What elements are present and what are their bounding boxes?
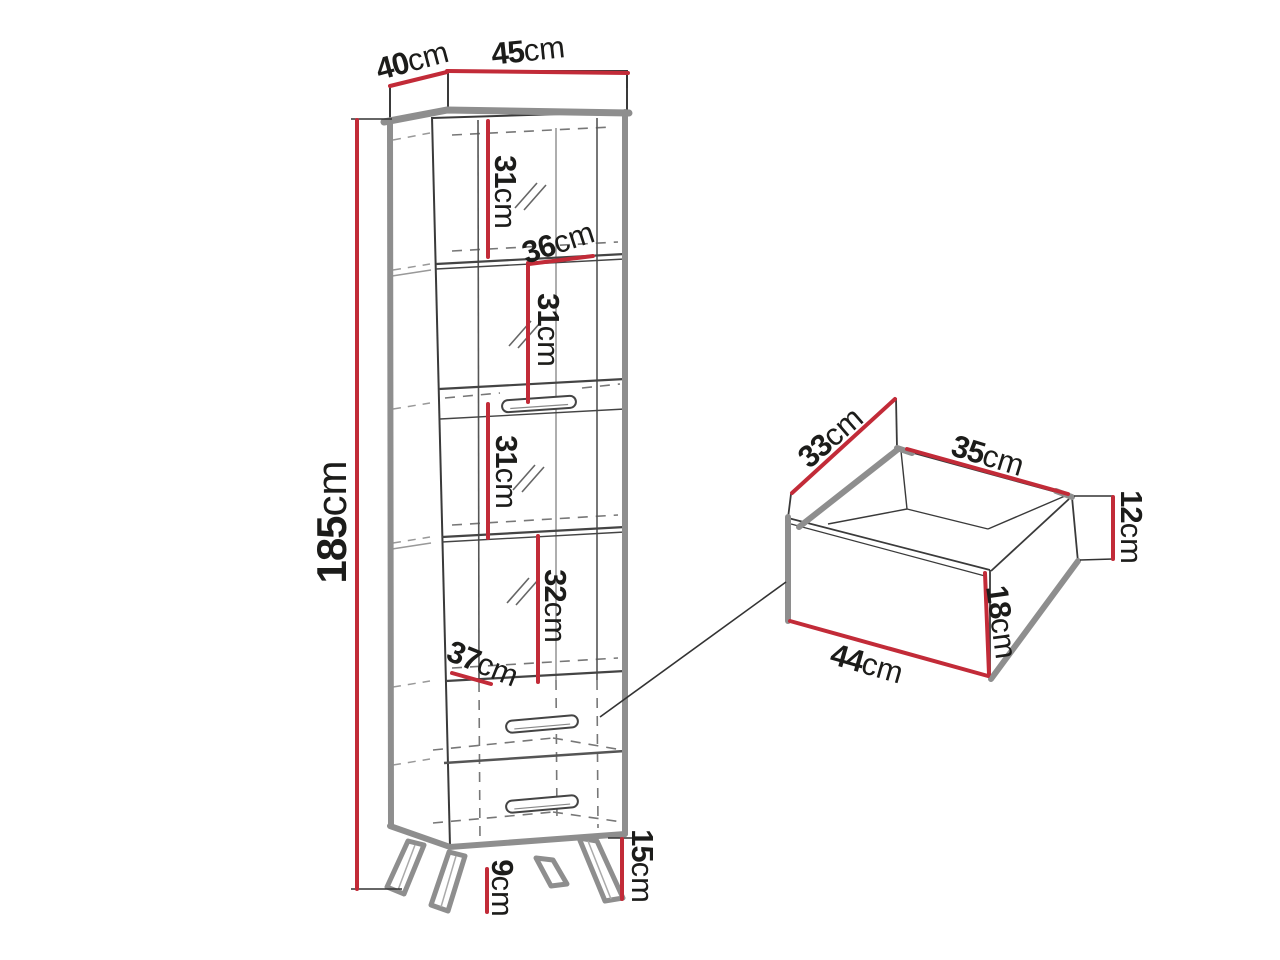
dim-label-45cm: 45cm [489, 29, 566, 72]
dim-label-32cm: 32cm [539, 569, 574, 643]
dim-label-15cm: 15cm [626, 829, 661, 903]
dim-line-45 [447, 71, 628, 73]
cabinet-leg [387, 841, 424, 894]
interior-left-wall [478, 120, 479, 682]
dim-label-31cm-top: 31cm [489, 155, 524, 229]
cabinet-top-front-face [448, 71, 627, 111]
cabinet-leg-back [536, 858, 567, 886]
dim-label-31cm-mid: 31cm [532, 293, 567, 367]
extension-line [1080, 559, 1113, 560]
furniture-dimension-diagram: 40cm 45cm 185cm 31cm 36cm 31cm 31cm 32cm… [0, 0, 1280, 960]
dim-label-9cm: 9cm [486, 859, 521, 917]
diagram-canvas: 40cm 45cm 185cm 31cm 36cm 31cm 31cm 32cm… [0, 0, 1280, 960]
cabinet-leg [579, 838, 623, 901]
dim-label-31cm-low: 31cm [490, 435, 525, 509]
left-outer-edge [390, 124, 391, 826]
dim-label-12cm: 12cm [1115, 490, 1150, 564]
dim-label-185cm: 185cm [308, 460, 355, 583]
drawer-side-back-edge [896, 398, 897, 448]
